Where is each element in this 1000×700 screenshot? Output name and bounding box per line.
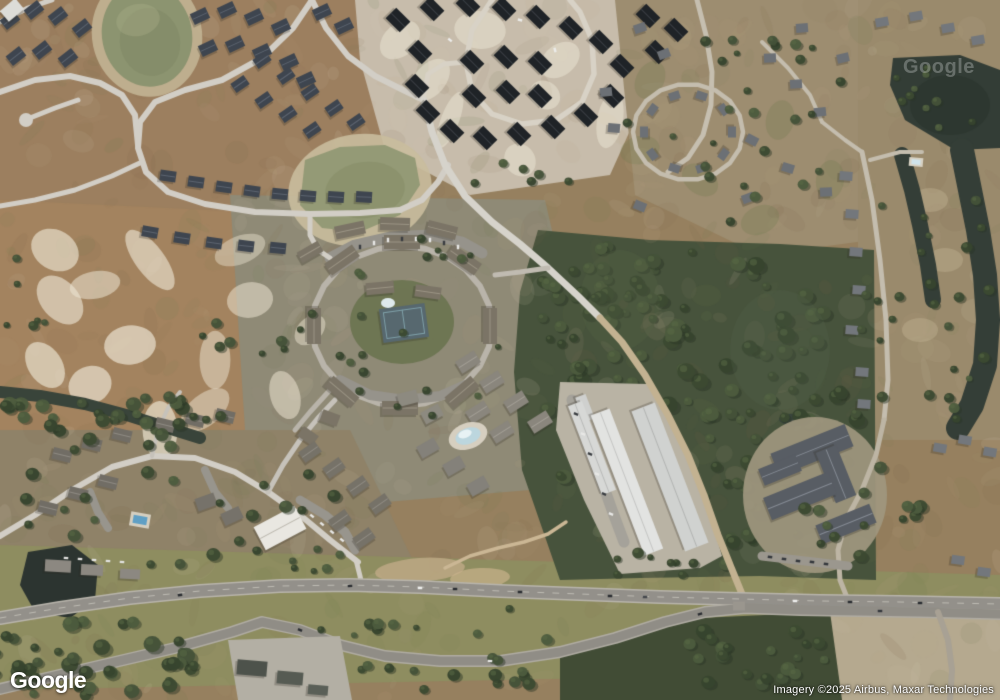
google-logo[interactable]: Google [10,667,86,694]
imagery-attribution: Imagery ©2025 Airbus, Maxar Technologies [773,684,994,696]
satellite-imagery[interactable] [0,0,1000,700]
map-viewport[interactable]: Google Google Imagery ©2025 Airbus, Maxa… [0,0,1000,700]
